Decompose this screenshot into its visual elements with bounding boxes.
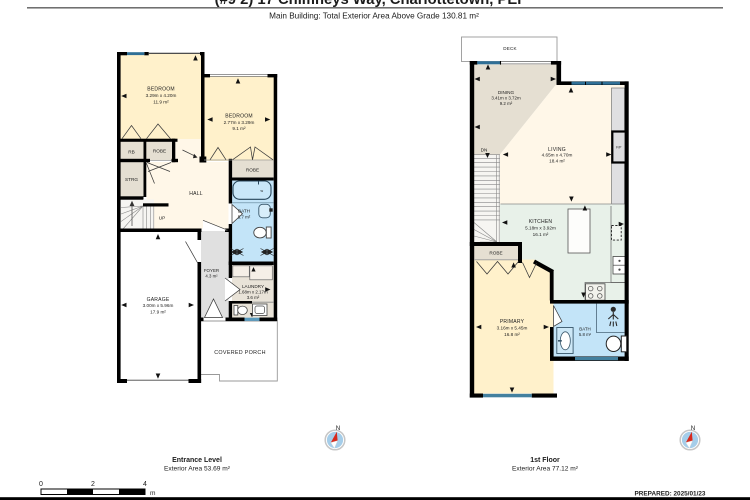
- svg-text:3.00m x 5.96m: 3.00m x 5.96m: [143, 303, 174, 308]
- svg-text:HALL: HALL: [189, 191, 202, 197]
- svg-text:KITCHEN: KITCHEN: [529, 219, 553, 225]
- svg-text:3.41m x 3.72m: 3.41m x 3.72m: [491, 96, 521, 101]
- svg-text:5.18m x 3.92m: 5.18m x 3.92m: [525, 226, 556, 231]
- svg-text:Main Building: Total Exterior: Main Building: Total Exterior Area Above…: [269, 12, 479, 21]
- svg-text:5.8 m²: 5.8 m²: [579, 332, 592, 337]
- svg-text:4.3 m²: 4.3 m²: [205, 274, 218, 279]
- svg-text:Entrance Level: Entrance Level: [172, 457, 222, 464]
- svg-text:ROBE: ROBE: [153, 149, 166, 154]
- svg-text:3.6 m²: 3.6 m²: [247, 295, 260, 300]
- svg-text:BATH: BATH: [238, 209, 250, 214]
- svg-text:9.1 m²: 9.1 m²: [232, 126, 246, 131]
- svg-text:Exterior Area 53.69 m²: Exterior Area 53.69 m²: [164, 466, 231, 473]
- svg-text:DINING: DINING: [498, 90, 515, 95]
- svg-text:GARAGE: GARAGE: [147, 297, 170, 303]
- svg-text:5.7 m²: 5.7 m²: [238, 215, 251, 220]
- svg-text:m: m: [150, 490, 156, 497]
- svg-text:PREPARED: 2025/01/23: PREPARED: 2025/01/23: [635, 491, 706, 498]
- svg-text:18.4 m²: 18.4 m²: [549, 158, 565, 163]
- svg-text:N: N: [336, 425, 340, 432]
- svg-text:Exterior Area 77.12 m²: Exterior Area 77.12 m²: [512, 466, 579, 473]
- svg-text:FOYER: FOYER: [204, 268, 219, 273]
- svg-text:11.9 m²: 11.9 m²: [153, 99, 169, 104]
- svg-text:RB: RB: [128, 150, 135, 155]
- svg-text:17.9 m²: 17.9 m²: [150, 309, 166, 314]
- svg-text:N: N: [691, 425, 695, 432]
- svg-text:STRG: STRG: [125, 177, 138, 182]
- svg-text:BEDROOM: BEDROOM: [225, 114, 252, 120]
- svg-text:COVERED PORCH: COVERED PORCH: [214, 350, 266, 356]
- svg-text:2.77m x 3.29m: 2.77m x 3.29m: [224, 120, 255, 125]
- svg-text:w: w: [261, 189, 264, 193]
- svg-text:4.65m x 4.70m: 4.65m x 4.70m: [542, 153, 573, 158]
- svg-text:ROBE: ROBE: [489, 251, 502, 256]
- svg-text:1.68m x 2.17m: 1.68m x 2.17m: [238, 290, 268, 295]
- svg-text:0: 0: [39, 481, 43, 488]
- svg-text:1st Floor: 1st Floor: [530, 457, 560, 464]
- svg-text:F/P: F/P: [616, 145, 622, 149]
- svg-text:DECK: DECK: [503, 46, 517, 51]
- svg-text:3.29m x 4.20m: 3.29m x 4.20m: [146, 93, 177, 98]
- svg-text:9.2 m²: 9.2 m²: [500, 101, 513, 106]
- svg-text:16.8 m²: 16.8 m²: [504, 332, 520, 337]
- svg-text:16.1 m²: 16.1 m²: [533, 232, 549, 237]
- svg-text:BATH: BATH: [579, 327, 591, 332]
- svg-text:UP: UP: [159, 216, 166, 221]
- svg-text:2: 2: [91, 481, 95, 488]
- svg-text:3.16m x 5.45m: 3.16m x 5.45m: [497, 326, 528, 331]
- svg-text:LAUNDRY: LAUNDRY: [242, 284, 264, 289]
- svg-text:DN: DN: [481, 148, 488, 153]
- svg-text:BEDROOM: BEDROOM: [147, 87, 174, 93]
- svg-text:(#9 2) 17 Chimneys Way, Charlo: (#9 2) 17 Chimneys Way, Charlottetown, P…: [215, 0, 522, 8]
- svg-text:4: 4: [143, 481, 147, 488]
- svg-text:ROBE: ROBE: [246, 168, 259, 173]
- svg-text:PRIMARY: PRIMARY: [500, 319, 525, 325]
